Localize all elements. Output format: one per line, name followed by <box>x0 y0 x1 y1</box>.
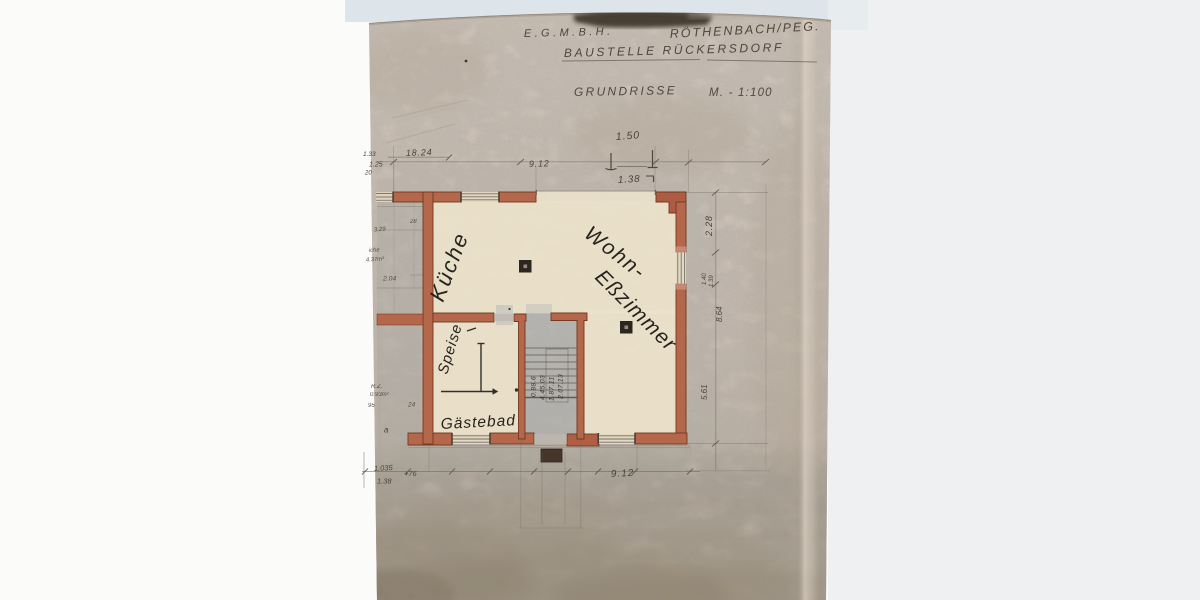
svg-text:20: 20 <box>364 171 372 177</box>
svg-text:2.04: 2.04 <box>382 276 396 283</box>
svg-text:1.50: 1.50 <box>615 129 640 143</box>
svg-text:0.88.6: 0.88.6 <box>531 376 538 397</box>
svg-text:1.035: 1.035 <box>374 463 394 473</box>
svg-text:95: 95 <box>368 403 375 409</box>
svg-text:9.12: 9.12 <box>611 468 635 480</box>
svg-text:2.28: 2.28 <box>704 215 714 237</box>
svg-text:4.45.03: 4.45.03 <box>540 375 547 400</box>
svg-text:1.39: 1.39 <box>709 275 715 287</box>
svg-text:3.29: 3.29 <box>374 227 387 234</box>
svg-text:2.07.13: 2.07.13 <box>558 374 565 400</box>
svg-text:a: a <box>384 426 389 435</box>
svg-text:M. - 1:100: M. - 1:100 <box>709 87 773 99</box>
svg-text:iche: iche <box>369 247 381 254</box>
svg-text:8.64: 8.64 <box>715 306 724 322</box>
svg-text:R.Z.: R.Z. <box>371 384 382 390</box>
svg-text:+76: +76 <box>404 469 418 478</box>
svg-text:28: 28 <box>409 219 417 225</box>
svg-text:GRUNDRISSE: GRUNDRISSE <box>574 83 677 99</box>
svg-text:18.24: 18.24 <box>406 147 433 158</box>
svg-text:1.33: 1.33 <box>363 151 376 158</box>
svg-text:1.38: 1.38 <box>377 477 392 486</box>
svg-text:1.40: 1.40 <box>702 273 708 285</box>
svg-text:1.87.11: 1.87.11 <box>549 376 556 401</box>
svg-text:1.25: 1.25 <box>369 162 383 169</box>
svg-text:5.61: 5.61 <box>700 384 709 400</box>
svg-text:4.37m²: 4.37m² <box>366 257 385 264</box>
svg-text:9.12: 9.12 <box>529 158 550 169</box>
svg-text:0.93m²: 0.93m² <box>370 392 390 398</box>
svg-text:1.38: 1.38 <box>618 174 641 186</box>
svg-text:E.G.M.B.H.: E.G.M.B.H. <box>524 26 614 40</box>
svg-text:24: 24 <box>407 402 416 409</box>
